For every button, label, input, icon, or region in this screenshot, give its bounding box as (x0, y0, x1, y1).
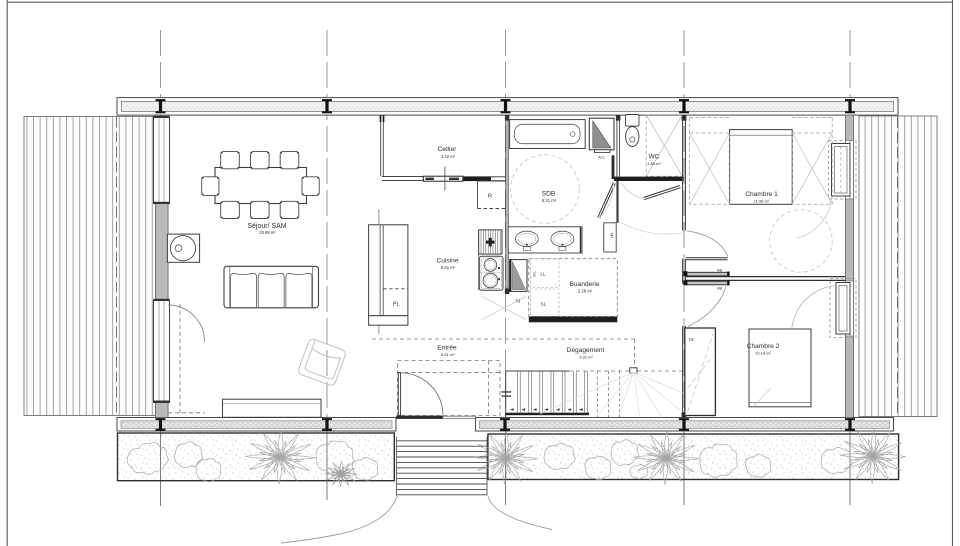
svg-text:9.32 m²: 9.32 m² (579, 354, 593, 359)
svg-text:MB: MB (717, 269, 723, 273)
svg-text:Chambre 2: Chambre 2 (747, 343, 780, 350)
svg-text:2.28 m²: 2.28 m² (578, 289, 593, 294)
svg-text:Chambre 1: Chambre 1 (745, 191, 778, 198)
svg-text:ACL: ACL (533, 271, 537, 277)
svg-text:5.44 m²: 5.44 m² (441, 352, 455, 357)
svg-text:7d: 7d (689, 337, 694, 342)
svg-text:VEL: VEL (610, 232, 614, 239)
svg-text:SL: SL (541, 302, 547, 307)
svg-text:LL: LL (541, 272, 547, 277)
svg-text:Buanderie: Buanderie (569, 281, 599, 288)
svg-text:Dégagement: Dégagement (567, 347, 605, 354)
svg-text:7d: 7d (515, 299, 520, 304)
svg-text:ACL: ACL (598, 155, 605, 159)
svg-text:3.42 m²: 3.42 m² (441, 154, 456, 159)
svg-text:25.99 m²: 25.99 m² (259, 230, 276, 235)
svg-text:Cuisine: Cuisine (437, 258, 459, 265)
svg-text:6.31 m²: 6.31 m² (542, 198, 557, 203)
svg-text:MB: MB (717, 286, 723, 290)
svg-text:SDB: SDB (542, 191, 556, 198)
svg-text:Séjour/ SAM: Séjour/ SAM (247, 223, 286, 230)
svg-text:10.18 m²: 10.18 m² (755, 351, 771, 356)
svg-text:8.01 m²: 8.01 m² (441, 265, 456, 270)
svg-text:R: R (488, 194, 492, 200)
svg-text:Entrée: Entrée (437, 345, 457, 352)
svg-text:WC: WC (649, 154, 660, 161)
svg-text:1.85 m²: 1.85 m² (647, 161, 661, 166)
svg-text:PL: PL (393, 302, 400, 308)
svg-text:11.98 m²: 11.98 m² (754, 198, 770, 203)
svg-text:Cellier: Cellier (438, 146, 457, 153)
